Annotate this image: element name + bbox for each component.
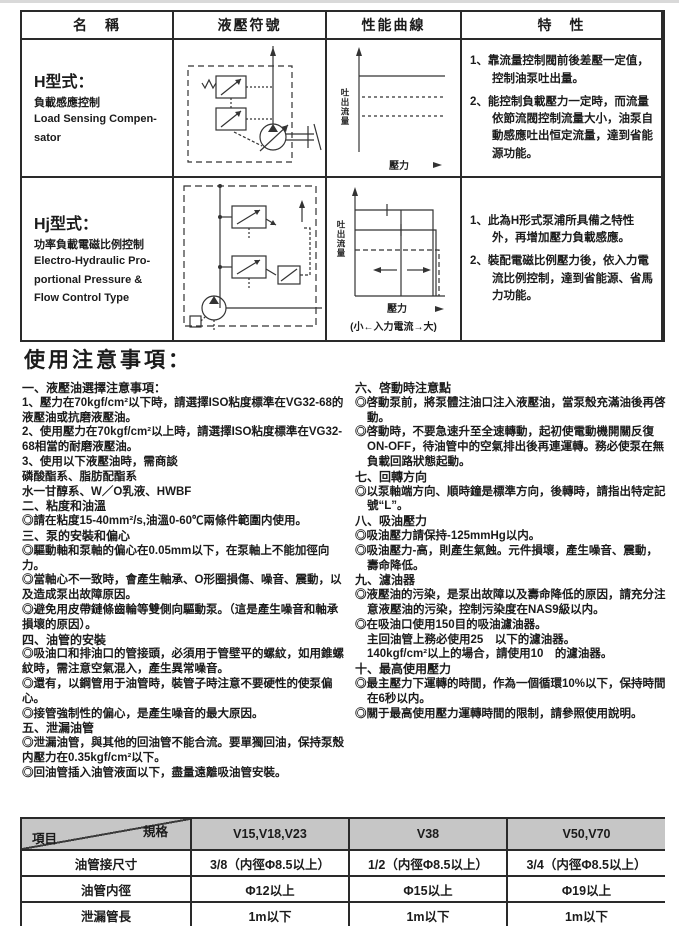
note-line: ◎請在粘度15-40mm²/s,油溫0-60℃兩條件範圍内使用。	[22, 514, 346, 529]
row-h-symbol	[174, 40, 325, 176]
note-line: 140kgf/cm²以上的場合，請使用10 的濾油器。	[355, 647, 668, 662]
row-h-name: H型式： 負載感應控制 Load Sensing Compen- sator	[22, 40, 172, 176]
notes-section-title: 使用注意事項：	[24, 344, 192, 374]
column-header-name: 名 稱	[22, 12, 172, 38]
note-line: 八、吸油壓力	[355, 514, 668, 529]
note-line: 十、最高使用壓力	[355, 662, 668, 677]
spec-corner-item-label: 項目	[32, 828, 57, 847]
note-line: 二、粘度和油溫	[22, 499, 346, 514]
h-type-title: H型式：	[34, 68, 172, 92]
note-line: 磷酸酯系、脂肪配酯系	[22, 470, 346, 485]
note-line: ◎啓動泵前，將泵體注油口注入液壓油，當泵殼充滿油後再啓動。	[355, 396, 668, 426]
spec-value: Φ19以上	[508, 877, 665, 901]
curve-hj-caption: (小←入力電流→大)	[327, 318, 460, 333]
note-line: ◎接管強制性的偏心，是產生噪音的最大原因。	[22, 707, 346, 722]
spec-value: 1m以下	[508, 903, 665, 926]
note-line: ◎吸油壓力-高，則產生氣蝕。元件損壞，產生噪音、震動，壽命降低。	[355, 544, 668, 574]
row-h-features: 1、靠流量控制閥前後差壓一定值，控制油泵吐出量。 2、能控制負載壓力一定時，而流…	[462, 40, 661, 176]
spec-value: 1m以下	[192, 903, 348, 926]
column-header-symbol: 液壓符號	[174, 12, 325, 38]
note-line: 1、壓力在70kgf/cm²以下時，請選擇ISO粘度標準在VG32-68的液壓油…	[22, 396, 346, 426]
spec-column-header: V15,V18,V23	[192, 819, 348, 849]
h-type-subtitle: 負載感應控制	[34, 94, 172, 110]
hj-type-title: Hj型式：	[34, 210, 172, 234]
curve-hj-ylabel: 吐出流量	[335, 220, 347, 258]
h-type-english-line: Load Sensing Compen-	[34, 110, 172, 129]
column-header-curve: 性能曲線	[327, 12, 460, 38]
note-line: ◎吸油壓力請保持-125mmHg以内。	[355, 529, 668, 544]
feature-item: 1、此為H形式泵浦所具備之特性外，再增加壓力負載感應。	[470, 213, 653, 248]
note-line: ◎回油管插入油管液面以下，盡量遠離吸油管安裝。	[22, 766, 346, 781]
note-line: 2、使用壓力在70kgf/cm²以上時，請選擇ISO粘度標準在VG32-68相當…	[22, 425, 346, 455]
spec-row-label: 泄漏管長	[22, 903, 190, 926]
spec-value: Φ15以上	[350, 877, 506, 901]
scan-artifact	[0, 0, 679, 3]
note-line: 主回油管上務必使用25 以下的濾油器。	[355, 633, 668, 648]
feature-item: 2、裝配電磁比例壓力後，依入力電流比例控制，達到省能源、省馬力功能。	[470, 253, 653, 305]
note-line: ◎啓動時，不要急速升至全速轉動，起初使電動機開關反復ON-OFF，待油管中的空氣…	[355, 425, 668, 469]
row-hj-symbol	[174, 178, 325, 340]
hj-type-english-line: Flow Control Type	[34, 289, 172, 308]
note-line: ◎在吸油口使用150目的吸油濾油器。	[355, 618, 668, 633]
notes-left-column: 一、液壓油選擇注意事項：1、壓力在70kgf/cm²以下時，請選擇ISO粘度標準…	[22, 381, 346, 781]
notes-right-column: 六、啓動時注意點◎啓動泵前，將泵體注油口注入液壓油，當泵殼充滿油後再啓動。◎啓動…	[355, 381, 668, 781]
h-type-english-line: sator	[34, 129, 172, 148]
note-line: ◎以泵軸端方向、順時鐘是標準方向，後轉時，請指出特定記號“L”。	[355, 485, 668, 515]
spec-column-header: V50,V70	[508, 819, 665, 849]
note-line: 一、液壓油選擇注意事項：	[22, 381, 346, 396]
note-line: 四、油管的安裝	[22, 633, 346, 648]
note-line: 九、濾油器	[355, 573, 668, 588]
hj-type-subtitle: 功率負載電磁比例控制	[34, 236, 172, 252]
note-line: ◎當軸心不一致時，會產生軸承、O形圈損傷、噪音、震動，以及造成泵出故障原因。	[22, 573, 346, 603]
note-line: ◎驅動軸和泵軸的偏心在0.05mm以下，在泵軸上不能加徑向力。	[22, 544, 346, 574]
hydraulic-symbol-hj-icon	[174, 178, 324, 340]
spec-value: 3/4（内徑Φ8.5以上）	[508, 851, 665, 875]
note-line: 五、泄漏油管	[22, 721, 346, 736]
note-line: 水一甘醇系、W／O乳液、HWBF	[22, 485, 346, 500]
hj-type-english: Electro-Hydraulic Pro- portional Pressur…	[34, 252, 172, 308]
hj-type-english-line: Electro-Hydraulic Pro-	[34, 252, 172, 271]
h-type-english: Load Sensing Compen- sator	[34, 110, 172, 147]
spec-corner-spec-label: 規格	[143, 821, 168, 840]
spec-value: 1/2（内徑Φ8.5以上）	[350, 851, 506, 875]
row-h-curve: 吐出流量 壓力	[327, 40, 460, 176]
spec-value: 1m以下	[350, 903, 506, 926]
pump-type-table: 名 稱 液壓符號 性能曲線 特 性 H型式： 負載感應控制 Load Sensi…	[20, 10, 665, 342]
note-line: ◎避免用皮帶鏈條齒輪等雙側向驅動泵。（這是產生噪音和軸承損壞的原因）。	[22, 603, 346, 633]
spec-value: 3/8（内徑Φ8.5以上）	[192, 851, 348, 875]
notes-columns: 一、液壓油選擇注意事項：1、壓力在70kgf/cm²以下時，請選擇ISO粘度標準…	[22, 381, 668, 781]
spec-row-label: 油管内徑	[22, 877, 190, 901]
spec-corner-cell: 規格 項目	[22, 819, 190, 849]
note-line: ◎泄漏油管，與其他的回油管不能合流。要單獨回油，保持泵殼内壓力在0.35kgf/…	[22, 736, 346, 766]
note-line: 三、泵的安裝和偏心	[22, 529, 346, 544]
spec-table: 規格 項目 V15,V18,V23 V38 V50,V70 油管接尺寸 3/8（…	[20, 817, 665, 926]
spec-column-header: V38	[350, 819, 506, 849]
feature-item: 1、靠流量控制閥前後差壓一定值，控制油泵吐出量。	[470, 53, 653, 88]
document-page: 名 稱 液壓符號 性能曲線 特 性 H型式： 負載感應控制 Load Sensi…	[0, 0, 679, 926]
spec-value: Φ12以上	[192, 877, 348, 901]
spec-row-label: 油管接尺寸	[22, 851, 190, 875]
curve-h-xlabel: 壓力	[389, 157, 409, 172]
note-line: 七、回轉方向	[355, 470, 668, 485]
column-header-features: 特 性	[462, 12, 661, 38]
row-hj-name: Hj型式： 功率負載電磁比例控制 Electro-Hydraulic Pro- …	[22, 178, 172, 340]
note-line: ◎液壓油的污染，是泵出故障以及壽命降低的原因，請充分注意液壓油的污染，控制污染度…	[355, 588, 668, 618]
note-line: ◎吸油口和排油口的管接頭，必須用于管壁平的螺紋，如用錐螺紋時，需注意空氣混入，產…	[22, 647, 346, 677]
note-line: ◎還有，以鋼管用于油管時，裝管子時注意不要硬性的使泵偏心。	[22, 677, 346, 707]
note-line: 3、使用以下液壓油時，需商談	[22, 455, 346, 470]
row-hj-curve: 吐出流量 壓力 (小←入力電流→大)	[327, 178, 460, 340]
curve-hj-xlabel: 壓力	[387, 300, 407, 315]
curve-h-ylabel: 吐出流量	[339, 88, 351, 126]
note-line: ◎關于最高使用壓力運轉時間的限制，請參照使用說明。	[355, 707, 668, 722]
feature-item: 2、能控制負載壓力一定時，而流量依節流閥控制流量大小，油泵自動感應吐出恒定流量，…	[470, 94, 653, 163]
hydraulic-symbol-h-icon	[174, 40, 324, 176]
row-hj-features: 1、此為H形式泵浦所具備之特性外，再增加壓力負載感應。 2、裝配電磁比例壓力後，…	[462, 178, 661, 340]
note-line: 六、啓動時注意點	[355, 381, 668, 396]
hj-type-english-line: portional Pressure &	[34, 271, 172, 290]
note-line: ◎最主壓力下運轉的時間，作為一個循環10%以下，保持時間在6秒以内。	[355, 677, 668, 707]
